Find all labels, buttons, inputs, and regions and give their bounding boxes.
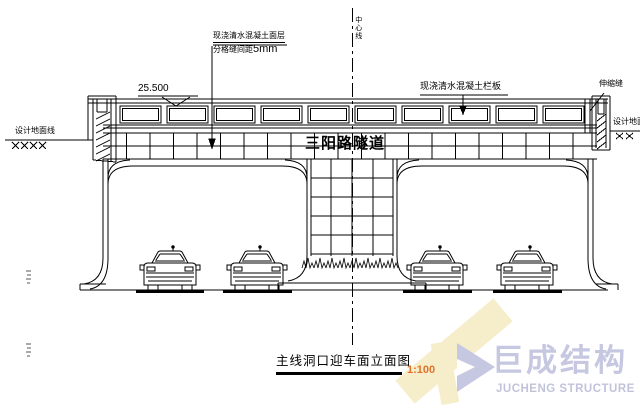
car-icon — [497, 246, 557, 290]
title-underline — [276, 372, 402, 375]
drawing-title: 主线洞口迎车面立面图 — [276, 355, 411, 369]
surface-annotation-line2: 分格缝间距5mm — [213, 43, 285, 55]
left-portal-wall — [80, 159, 108, 290]
opening-ceilings — [108, 160, 588, 184]
elevation-label: 25.500 — [138, 83, 169, 94]
ground-line-left-label: 设计地面线 — [15, 127, 55, 136]
margin-marks — [26, 271, 31, 356]
ground-line-left — [5, 140, 93, 149]
railing-annotation: 现浇清水混凝土栏板 — [420, 82, 501, 92]
shrubs — [302, 258, 398, 268]
jucheng-logo-text-en: JUCHENG STRUCTURE — [496, 383, 635, 396]
elevation-marker — [138, 96, 198, 106]
centerline-label: 中心线 — [354, 16, 362, 40]
surface-annotation: 现浇清水混凝土面层 分格缝间距5mm — [213, 32, 285, 55]
jucheng-logo-text-cn: 巨成结构 — [492, 344, 628, 378]
road-line — [80, 290, 608, 292]
expansion-joint-label: 伸缩缝 — [599, 80, 623, 89]
drawing-scale: 1:100 — [407, 364, 435, 376]
tunnel-name: 三阳路隧道 — [305, 136, 385, 153]
left-wing-wall — [88, 96, 116, 162]
ground-line-right — [610, 131, 640, 139]
ground-line-right-label: 设计地面线 — [613, 118, 640, 127]
drawing-sheet: { "labels": { "centerline": "中心线", "surf… — [0, 0, 640, 408]
car-icon — [140, 246, 200, 290]
right-portal-wall — [588, 159, 618, 290]
right-wing-wall — [592, 96, 610, 150]
surface-annotation-line1: 现浇清水混凝土面层 — [213, 32, 285, 43]
